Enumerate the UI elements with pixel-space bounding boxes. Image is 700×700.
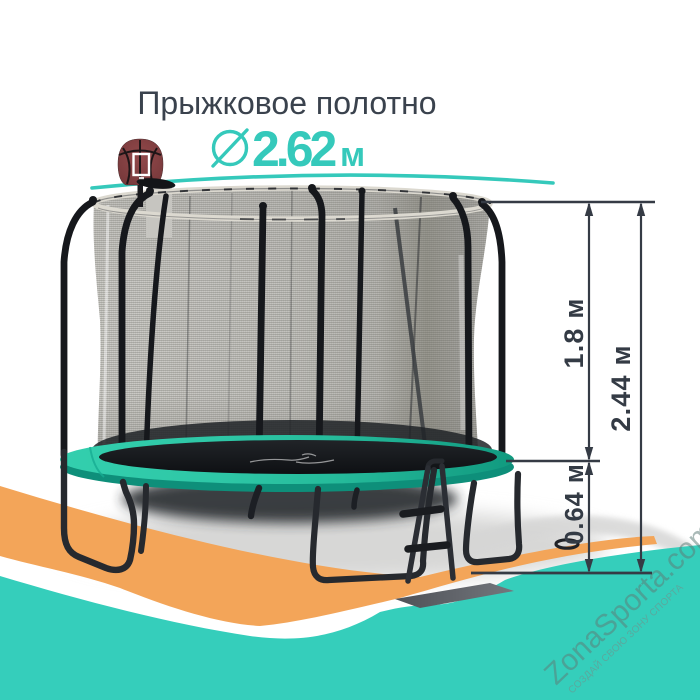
svg-text:2.44 м: 2.44 м [606,344,636,431]
svg-text:2.62: 2.62 [252,121,336,177]
svg-text:Прыжковое полотно: Прыжковое полотно [137,85,436,121]
svg-text:м: м [340,136,365,174]
svg-text:0.64 м: 0.64 м [561,463,589,545]
svg-text:1.8 м: 1.8 м [559,297,589,368]
